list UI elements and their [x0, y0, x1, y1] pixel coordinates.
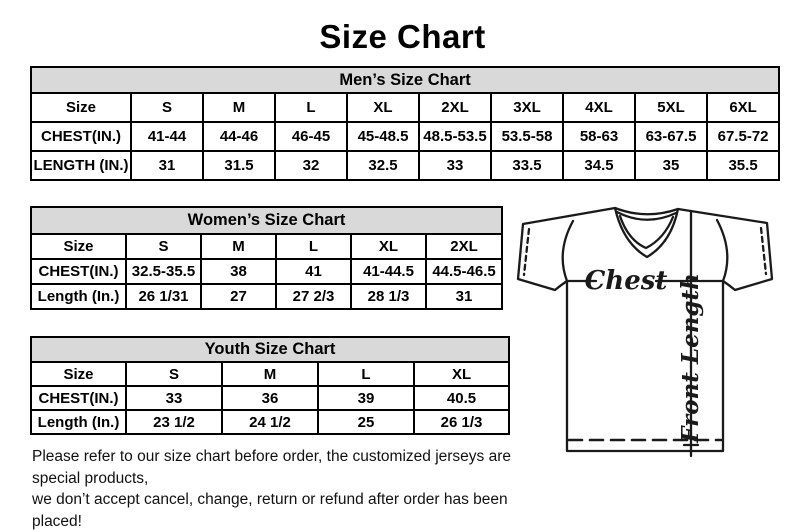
mens-size-row: Size S M L XL 2XL 3XL 4XL 5XL 6XL: [31, 93, 779, 122]
tshirt-icon: Chest Front Length: [505, 195, 805, 500]
chest-label: Chest: [585, 266, 668, 296]
chest-cell: 32.5-35.5: [126, 259, 201, 284]
size-cell: L: [275, 93, 347, 122]
size-cell: S: [131, 93, 203, 122]
row-label: Size: [31, 234, 126, 259]
size-cell: S: [126, 234, 201, 259]
row-label: CHEST(IN.): [31, 259, 126, 284]
length-cell: 26 1/3: [414, 410, 509, 434]
mens-length-row: LENGTH (IN.) 31 31.5 32 32.5 33 33.5 34.…: [31, 151, 779, 180]
length-cell: 24 1/2: [222, 410, 318, 434]
tshirt-measurement-diagram: Chest Front Length: [505, 195, 805, 500]
chest-cell: 44-46: [203, 122, 275, 151]
mens-size-chart-table: Men’s Size Chart Size S M L XL 2XL 3XL 4…: [30, 66, 780, 181]
length-cell: 32.5: [347, 151, 419, 180]
row-label: Size: [31, 362, 126, 386]
womens-chart-title: Women’s Size Chart: [31, 207, 502, 234]
chest-cell: 53.5-58: [491, 122, 563, 151]
size-cell: 3XL: [491, 93, 563, 122]
length-cell: 31.5: [203, 151, 275, 180]
chest-cell: 38: [201, 259, 276, 284]
size-cell: L: [318, 362, 414, 386]
youth-size-chart-table: Youth Size Chart Size S M L XL CHEST(IN.…: [30, 336, 510, 435]
womens-size-chart-table: Women’s Size Chart Size S M L XL 2XL CHE…: [30, 206, 503, 310]
youth-size-row: Size S M L XL: [31, 362, 509, 386]
mens-chart-header-row: Men’s Size Chart: [31, 67, 779, 93]
chest-cell: 41-44: [131, 122, 203, 151]
youth-chart-header-row: Youth Size Chart: [31, 337, 509, 362]
disclaimer-note: Please refer to our size chart before or…: [32, 446, 552, 532]
chest-cell: 67.5-72: [707, 122, 779, 151]
length-cell: 26 1/31: [126, 284, 201, 309]
length-cell: 33.5: [491, 151, 563, 180]
disclaimer-line-2: we don’t accept cancel, change, return o…: [32, 489, 552, 532]
size-cell: 5XL: [635, 93, 707, 122]
youth-chest-row: CHEST(IN.) 33 36 39 40.5: [31, 386, 509, 410]
womens-chart-header-row: Women’s Size Chart: [31, 207, 502, 234]
mens-chart-title: Men’s Size Chart: [31, 67, 779, 93]
chest-cell: 48.5-53.5: [419, 122, 491, 151]
row-label: Size: [31, 93, 131, 122]
length-cell: 28 1/3: [351, 284, 426, 309]
chest-cell: 58-63: [563, 122, 635, 151]
length-cell: 33: [419, 151, 491, 180]
chest-cell: 36: [222, 386, 318, 410]
womens-chest-row: CHEST(IN.) 32.5-35.5 38 41 41-44.5 44.5-…: [31, 259, 502, 284]
chest-cell: 40.5: [414, 386, 509, 410]
chest-cell: 63-67.5: [635, 122, 707, 151]
size-cell: XL: [347, 93, 419, 122]
length-cell: 34.5: [563, 151, 635, 180]
size-cell: 2XL: [426, 234, 502, 259]
size-cell: XL: [414, 362, 509, 386]
chest-cell: 45-48.5: [347, 122, 419, 151]
chest-cell: 33: [126, 386, 222, 410]
length-cell: 27 2/3: [276, 284, 351, 309]
length-cell: 35.5: [707, 151, 779, 180]
chest-cell: 41-44.5: [351, 259, 426, 284]
mens-chest-row: CHEST(IN.) 41-44 44-46 46-45 45-48.5 48.…: [31, 122, 779, 151]
row-label: Length (In.): [31, 410, 126, 434]
size-cell: L: [276, 234, 351, 259]
youth-length-row: Length (In.) 23 1/2 24 1/2 25 26 1/3: [31, 410, 509, 434]
row-label: LENGTH (IN.): [31, 151, 131, 180]
size-cell: 4XL: [563, 93, 635, 122]
size-cell: M: [203, 93, 275, 122]
chest-cell: 44.5-46.5: [426, 259, 502, 284]
size-cell: M: [222, 362, 318, 386]
womens-size-row: Size S M L XL 2XL: [31, 234, 502, 259]
chest-cell: 39: [318, 386, 414, 410]
length-cell: 32: [275, 151, 347, 180]
row-label: CHEST(IN.): [31, 122, 131, 151]
front-length-label: Front Length: [677, 273, 704, 444]
row-label: Length (In.): [31, 284, 126, 309]
size-cell: M: [201, 234, 276, 259]
row-label: CHEST(IN.): [31, 386, 126, 410]
size-cell: 6XL: [707, 93, 779, 122]
length-cell: 35: [635, 151, 707, 180]
size-cell: S: [126, 362, 222, 386]
length-cell: 25: [318, 410, 414, 434]
page-title: Size Chart: [0, 18, 805, 56]
tshirt-outline: [518, 208, 772, 451]
length-cell: 31: [131, 151, 203, 180]
chest-cell: 46-45: [275, 122, 347, 151]
womens-length-row: Length (In.) 26 1/31 27 27 2/3 28 1/3 31: [31, 284, 502, 309]
length-cell: 27: [201, 284, 276, 309]
size-cell: XL: [351, 234, 426, 259]
length-cell: 23 1/2: [126, 410, 222, 434]
disclaimer-line-1: Please refer to our size chart before or…: [32, 446, 552, 489]
chest-cell: 41: [276, 259, 351, 284]
size-cell: 2XL: [419, 93, 491, 122]
youth-chart-title: Youth Size Chart: [31, 337, 509, 362]
length-cell: 31: [426, 284, 502, 309]
